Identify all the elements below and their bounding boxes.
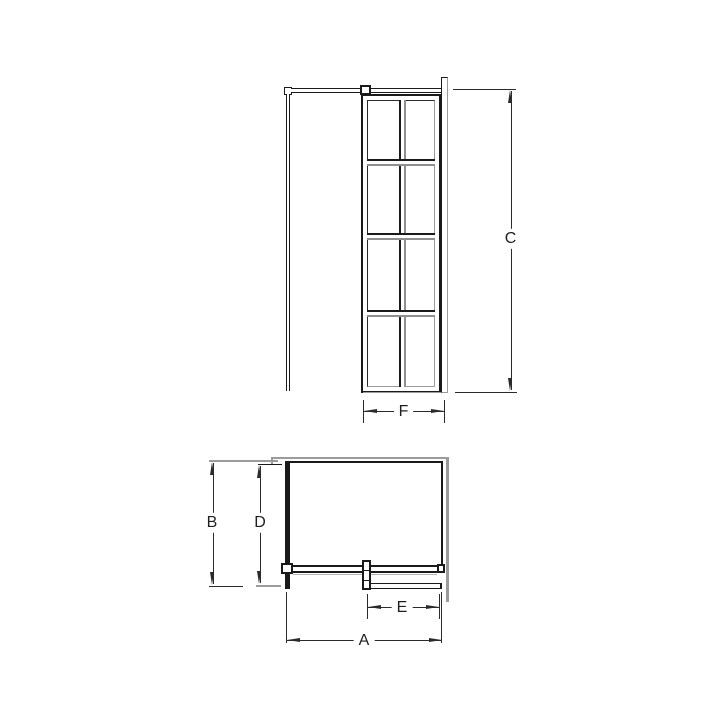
bar-wall-bracket-right bbox=[437, 564, 446, 574]
panel-clamp-divider-1 bbox=[363, 570, 370, 572]
dim-E-label: E bbox=[392, 597, 413, 617]
enclosure-top-edge bbox=[287, 461, 444, 463]
dim-F-label: F bbox=[394, 402, 414, 422]
dim-C-ext-top bbox=[453, 89, 516, 90]
panel-clamp-divider-2 bbox=[363, 580, 370, 582]
grid-muntin-horizontal-1 bbox=[367, 159, 436, 166]
dim-C-ext-bottom bbox=[455, 392, 517, 393]
dim-B-ext-bottom-gray bbox=[256, 585, 281, 587]
bar-wall-bracket-left bbox=[281, 563, 293, 575]
dim-C-arrow-down bbox=[508, 378, 512, 391]
support-post bbox=[286, 94, 290, 391]
enclosure-right-edge bbox=[441, 461, 443, 566]
dim-D-arrow-up bbox=[257, 465, 261, 478]
grid-muntin-horizontal-2 bbox=[367, 233, 436, 240]
technical-drawing-canvas: C F bbox=[0, 0, 720, 720]
wall-right bbox=[446, 457, 449, 602]
dim-A-arrow-left bbox=[287, 638, 300, 642]
glass-panel-plan bbox=[371, 583, 443, 589]
wall-profile bbox=[441, 77, 448, 393]
dim-F-arrow-right bbox=[431, 409, 444, 413]
dim-C-label: C bbox=[500, 229, 522, 249]
dim-E-arrow-left bbox=[368, 605, 381, 609]
dim-F-arrow-left bbox=[364, 409, 377, 413]
dim-D-arrow-down bbox=[257, 571, 261, 584]
grid-muntin-horizontal-3 bbox=[367, 310, 436, 317]
dim-B-label: B bbox=[202, 513, 223, 533]
dim-E-arrow-right bbox=[426, 605, 439, 609]
dim-C-arrow-up bbox=[508, 90, 512, 103]
dim-A-ext-right bbox=[441, 592, 442, 643]
wall-top bbox=[271, 457, 449, 460]
dim-D-ext-top bbox=[258, 464, 282, 466]
dim-B-arrow-up bbox=[210, 462, 214, 475]
panel-bottom-shadow bbox=[363, 392, 442, 394]
dim-A-ext-left bbox=[286, 592, 287, 643]
dim-A-arrow-right bbox=[429, 638, 442, 642]
dim-F-ext-right bbox=[444, 400, 445, 423]
grid-muntin-vertical bbox=[399, 100, 406, 388]
dim-B-ext-bottom bbox=[209, 586, 243, 587]
dim-A-label: A bbox=[354, 630, 375, 650]
dim-D-label: D bbox=[249, 513, 271, 533]
dim-B-arrow-down bbox=[210, 572, 214, 585]
dim-B-ext-top bbox=[209, 460, 278, 462]
